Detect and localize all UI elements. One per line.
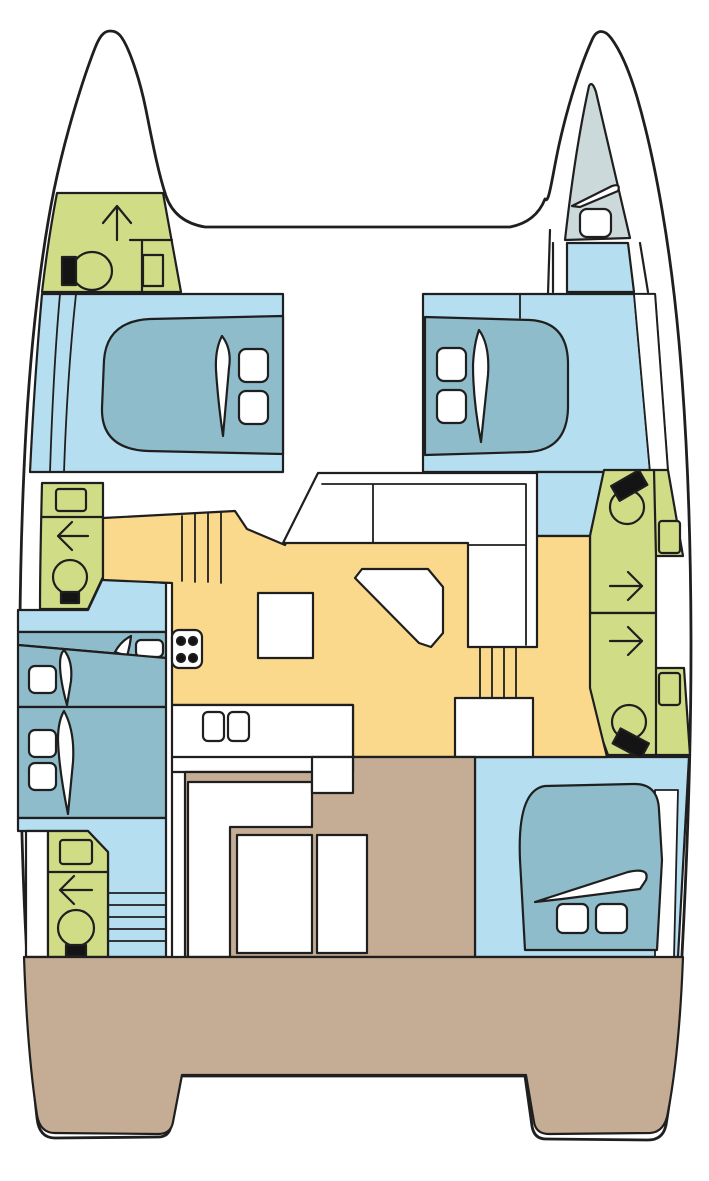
bed-pillow-icon xyxy=(29,730,56,757)
hatch-icon xyxy=(580,209,611,237)
cockpit-table xyxy=(237,835,312,953)
sink-icon xyxy=(56,489,86,511)
toilet-icon xyxy=(72,252,112,290)
port-mid-head xyxy=(40,483,103,609)
bed-pillow-icon xyxy=(239,349,268,382)
stove-top xyxy=(172,630,202,668)
sink-icon xyxy=(143,255,163,286)
bed-pillow-icon xyxy=(29,666,56,693)
galley-island xyxy=(258,593,313,658)
bed-pillow-icon xyxy=(136,640,163,657)
bed-pillow-icon xyxy=(239,391,268,424)
starboard-forward-cabin xyxy=(423,294,668,472)
double-bed xyxy=(520,784,662,950)
toilet-tank xyxy=(61,592,79,603)
bed-pillow-icon xyxy=(437,390,466,423)
bed-pillow-icon xyxy=(596,904,627,933)
port-bow-head xyxy=(42,193,181,292)
corridor-floor xyxy=(567,243,634,292)
walkway xyxy=(26,831,48,957)
sink-icon xyxy=(659,673,680,705)
cockpit-bench xyxy=(317,835,367,953)
port-aft-berths xyxy=(18,632,166,818)
cockpit-counter xyxy=(312,757,353,793)
stove-icon xyxy=(172,630,202,668)
port-aft-head xyxy=(48,831,108,957)
toilet-tank xyxy=(62,257,76,285)
burner xyxy=(189,654,197,662)
toilet-tank xyxy=(66,945,86,956)
bed-pillow-icon xyxy=(29,763,56,790)
starboard-aft-cabin xyxy=(475,757,689,957)
burner xyxy=(189,637,197,645)
double-sink-icon xyxy=(203,712,224,741)
sink-icon xyxy=(60,840,92,864)
burner xyxy=(177,637,185,645)
sink-icon xyxy=(659,521,680,553)
toilet-icon xyxy=(53,560,87,594)
salon xyxy=(103,473,607,772)
burner xyxy=(177,654,185,662)
double-bed xyxy=(425,317,568,455)
bed-pillow-icon xyxy=(557,904,588,933)
toilet-icon xyxy=(58,910,94,946)
double-bed xyxy=(102,316,283,454)
floor-plan-canvas xyxy=(0,0,709,1181)
cockpit-aft-deck xyxy=(24,957,683,1134)
bed-pillow-icon xyxy=(437,348,466,381)
port-forward-cabin xyxy=(30,294,283,472)
catamaran-deck-plan xyxy=(0,0,709,1181)
double-sink-icon xyxy=(228,712,249,741)
port-aft-section xyxy=(18,818,166,957)
stairs-landing xyxy=(455,698,533,757)
